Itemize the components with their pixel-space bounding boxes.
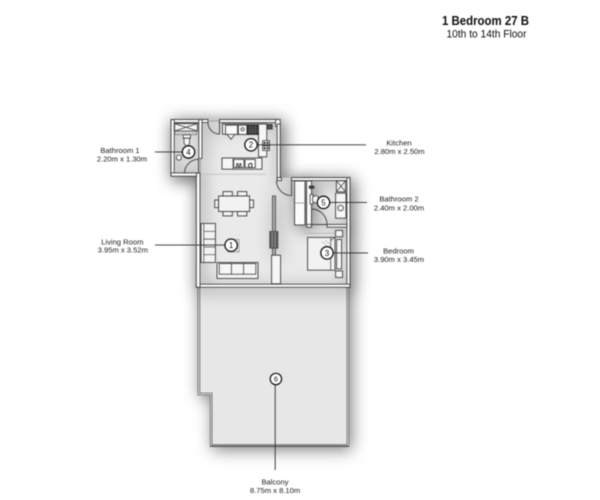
svg-text:4: 4	[186, 148, 191, 157]
svg-text:8.75m x 8.10m: 8.75m x 8.10m	[250, 486, 300, 495]
svg-text:6: 6	[274, 375, 278, 384]
svg-text:2: 2	[249, 141, 254, 150]
svg-text:3.90m x 3.45m: 3.90m x 3.45m	[374, 255, 424, 264]
svg-text:10th to 14th Floor: 10th to 14th Floor	[447, 29, 527, 41]
svg-text:1: 1	[229, 241, 234, 250]
svg-text:D: D	[248, 161, 253, 168]
svg-text:2.80m x 2.50m: 2.80m x 2.50m	[374, 147, 424, 156]
svg-text:3.95m x 3.52m: 3.95m x 3.52m	[98, 246, 148, 255]
svg-text:3: 3	[325, 249, 330, 258]
svg-text:W: W	[235, 161, 242, 168]
svg-text:2.40m x 2.00m: 2.40m x 2.00m	[374, 204, 424, 213]
svg-text:5: 5	[321, 198, 326, 207]
svg-text:2.20m x 1.30m: 2.20m x 1.30m	[97, 155, 147, 164]
svg-text:1 Bedroom 27 B: 1 Bedroom 27 B	[442, 13, 529, 28]
svg-text:Bathroom 2: Bathroom 2	[379, 195, 418, 204]
